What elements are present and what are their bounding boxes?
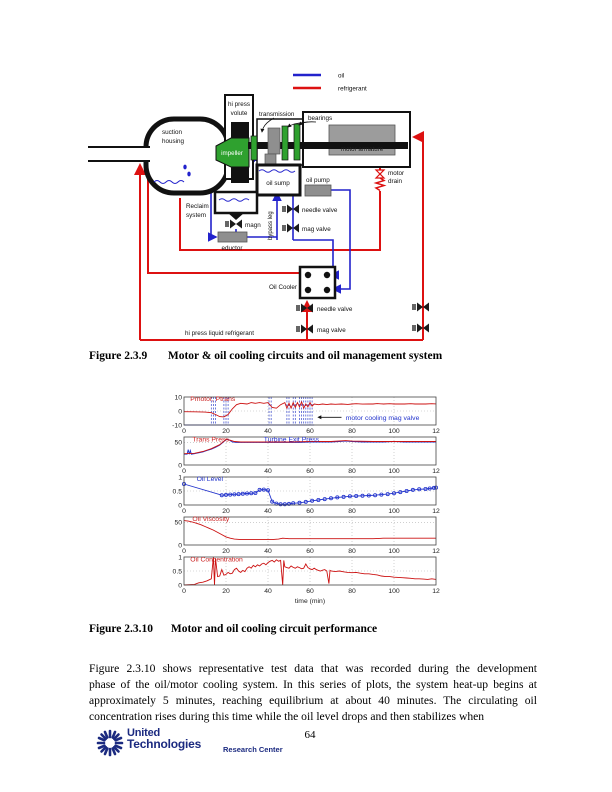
- svg-text:0: 0: [178, 502, 182, 509]
- chart-panel-trans-turbine-press: 02040608010012050Trans PressTurbine Exit…: [174, 437, 440, 475]
- svg-text:80: 80: [348, 508, 356, 515]
- svg-text:1: 1: [178, 554, 182, 561]
- svg-text:12: 12: [432, 468, 440, 475]
- cooler-port: [324, 272, 330, 278]
- mag-valve-icon: [296, 325, 313, 334]
- svg-text:0: 0: [178, 582, 182, 589]
- svg-text:60: 60: [306, 548, 314, 555]
- figure-2310-caption: Figure 2.3.10 Motor and oil cooling circ…: [89, 623, 539, 635]
- chart-panel-oil-viscosity: 02040608010012050Oil Viscosity: [174, 516, 440, 555]
- svg-text:80: 80: [348, 588, 356, 595]
- svg-text:Oil Concentration: Oil Concentration: [190, 556, 243, 563]
- volute-label-2: volute: [231, 110, 248, 117]
- cooler-port: [324, 287, 330, 293]
- svg-text:0.5: 0.5: [173, 568, 183, 575]
- oil-droplet: [183, 165, 186, 170]
- svg-text:40: 40: [264, 428, 272, 435]
- svg-text:0: 0: [178, 408, 182, 415]
- drain-valve-icon: [376, 174, 384, 178]
- svg-text:Trans Press: Trans Press: [192, 437, 229, 444]
- system-diagram: oil refrigerant: [88, 62, 478, 352]
- sunburst-icon: [98, 731, 122, 755]
- suction-housing-label-1: suction: [162, 129, 182, 136]
- svg-text:50: 50: [174, 440, 182, 447]
- svg-text:1: 1: [178, 474, 182, 481]
- svg-text:60: 60: [306, 468, 314, 475]
- mag-valve-icon: [282, 224, 299, 233]
- volute-section-lower: [231, 167, 249, 183]
- tank-funnel: [228, 213, 244, 220]
- impeller-label: impeller: [221, 150, 243, 157]
- svg-text:motor cooling mag valve: motor cooling mag valve: [346, 415, 420, 422]
- svg-text:80: 80: [348, 468, 356, 475]
- cooler-port: [305, 272, 311, 278]
- svg-text:80: 80: [348, 428, 356, 435]
- svg-text:60: 60: [306, 588, 314, 595]
- body-line: phase of the oil/motor cooling system. I…: [89, 677, 537, 693]
- volute-section-upper: [231, 122, 249, 138]
- reclaim-tank: [215, 192, 257, 213]
- svg-text:Pmotor, Ptrans: Pmotor, Ptrans: [190, 396, 236, 403]
- gear-block: [268, 128, 280, 154]
- chart-panel-motor-pressure: 02040608010012-10010Pmotor, Ptransmotor …: [172, 394, 440, 435]
- oil-cooler-group: Oil Cooler: [269, 267, 335, 298]
- svg-text:10: 10: [174, 394, 182, 401]
- drain-coil-icon: [376, 178, 384, 191]
- oil-pump-label: oil pump: [306, 177, 330, 184]
- eductor-label: eductor: [221, 245, 242, 252]
- svg-text:0: 0: [178, 542, 182, 549]
- body-line: Figure 2.3.10 shows representative test …: [89, 661, 537, 677]
- oil-droplet: [187, 172, 190, 177]
- needle-valve-top-label: needle valve: [302, 207, 338, 214]
- svg-text:12: 12: [432, 548, 440, 555]
- svg-text:100: 100: [388, 588, 400, 595]
- figure-2310-caption-label: Figure 2.3.10: [89, 623, 168, 635]
- hi-press-liquid-label: hi press liquid refrigerant: [185, 330, 254, 337]
- svg-text:time (min): time (min): [295, 598, 325, 605]
- svg-text:12: 12: [432, 428, 440, 435]
- mag-valve-bottom-label: mag valve: [317, 327, 346, 334]
- svg-text:60: 60: [306, 508, 314, 515]
- svg-text:100: 100: [388, 468, 400, 475]
- brand-name: United Technologies: [127, 728, 201, 750]
- series-Oil Level: [184, 484, 436, 504]
- oil-cooler-label: Oil Cooler: [269, 284, 297, 291]
- united-technologies-logo-icon: [95, 728, 125, 758]
- bypass-group: bypass leg needle valve mag valve: [268, 205, 338, 241]
- bearing-block: [282, 126, 288, 160]
- brand-subtitle: Research Center: [223, 745, 283, 754]
- chart-panel-oil-concentration: 0204060801001200.51Oil Concentrationtime…: [173, 554, 440, 605]
- svg-text:-10: -10: [172, 422, 182, 429]
- figure-239-caption-title: Motor & oil cooling circuits and oil man…: [168, 350, 442, 362]
- reclaim-group: magn Reclaim system eductor: [186, 192, 261, 252]
- svg-text:100: 100: [388, 508, 400, 515]
- motor-drain-label-1: motor: [388, 170, 404, 177]
- suction-housing-label-2: housing: [162, 138, 185, 145]
- svg-text:100: 100: [388, 428, 400, 435]
- figure-239-caption-label: Figure 2.3.9: [89, 350, 165, 362]
- bearings-label: bearings: [308, 115, 332, 122]
- svg-text:20: 20: [222, 548, 230, 555]
- transmission-label: transmission: [259, 111, 295, 118]
- cooler-port: [305, 287, 311, 293]
- body-line: concentration rises during this time whi…: [89, 709, 537, 725]
- drivetrain: motor armature transmission bearings: [248, 111, 410, 167]
- svg-text:40: 40: [264, 468, 272, 475]
- svg-text:20: 20: [222, 508, 230, 515]
- chart-panel-oil-level: 0204060801001200.51Oil Level: [173, 474, 440, 515]
- svg-text:80: 80: [348, 548, 356, 555]
- svg-text:20: 20: [222, 468, 230, 475]
- oil-sump-label: oil sump: [266, 180, 290, 187]
- svg-text:40: 40: [264, 548, 272, 555]
- svg-text:0: 0: [182, 468, 186, 475]
- oil-cooler-box: [300, 267, 335, 298]
- figure-239-caption: Figure 2.3.9 Motor & oil cooling circuit…: [89, 350, 539, 362]
- magn-valve-icon: [225, 220, 242, 229]
- legend-refrigerant-label: refrigerant: [338, 86, 367, 93]
- brand-line2: Technologies: [127, 739, 201, 750]
- body-line: approximately 5 minutes, reaching equili…: [89, 693, 537, 709]
- figure-2310-caption-title: Motor and oil cooling circuit performanc…: [171, 623, 377, 635]
- performance-chart: 02040608010012-10010Pmotor, Ptransmotor …: [168, 393, 444, 608]
- bypass-leg-label: bypass leg: [268, 211, 274, 240]
- svg-text:40: 40: [264, 588, 272, 595]
- volute-label-1: hi press: [228, 101, 250, 108]
- svg-text:40: 40: [264, 508, 272, 515]
- svg-text:0: 0: [182, 588, 186, 595]
- reclaim-label-2: system: [186, 212, 206, 219]
- svg-text:0: 0: [178, 462, 182, 469]
- svg-text:0: 0: [182, 548, 186, 555]
- svg-text:Oil Viscosity: Oil Viscosity: [192, 516, 229, 523]
- svg-text:60: 60: [306, 428, 314, 435]
- mag-valve-icon: [412, 324, 429, 333]
- svg-text:20: 20: [222, 588, 230, 595]
- svg-text:Turbine Exit Press: Turbine Exit Press: [264, 437, 320, 444]
- needle-valve-icon: [282, 205, 299, 214]
- oil-sump-group: oil sump oil pump: [257, 165, 331, 196]
- legend-oil-label: oil: [338, 73, 344, 80]
- svg-text:0: 0: [182, 428, 186, 435]
- bearing-block: [294, 124, 300, 160]
- magn-valve-label: magn: [245, 222, 261, 229]
- svg-text:12: 12: [432, 508, 440, 515]
- svg-text:12: 12: [432, 588, 440, 595]
- reclaim-label-1: Reclaim: [186, 203, 209, 210]
- motor-drain-label-2: drain: [388, 178, 402, 185]
- motor-armature-label: motor armature: [341, 146, 384, 153]
- needle-valve-icon: [296, 304, 313, 313]
- svg-text:0: 0: [182, 508, 186, 515]
- motor-drain-group: motor drain: [376, 170, 404, 191]
- svg-text:Oil Level: Oil Level: [197, 476, 224, 483]
- needle-valve-bottom-label: needle valve: [317, 306, 353, 313]
- svg-text:0.5: 0.5: [173, 488, 183, 495]
- diagram-legend: oil refrigerant: [293, 73, 367, 93]
- needle-valve-icon: [412, 303, 429, 312]
- oil-pump-box: [305, 185, 331, 196]
- compressor-assembly: suction housing hi press volute impeller: [88, 95, 253, 193]
- mag-valve-top-label: mag valve: [302, 226, 331, 233]
- svg-text:100: 100: [388, 548, 400, 555]
- body-paragraph: Figure 2.3.10 shows representative test …: [89, 661, 537, 725]
- page-number: 64: [290, 729, 330, 741]
- eductor-box: [218, 232, 247, 242]
- bearing-block: [251, 136, 257, 160]
- svg-text:20: 20: [222, 428, 230, 435]
- svg-text:50: 50: [174, 520, 182, 527]
- document-page: oil refrigerant: [0, 0, 612, 792]
